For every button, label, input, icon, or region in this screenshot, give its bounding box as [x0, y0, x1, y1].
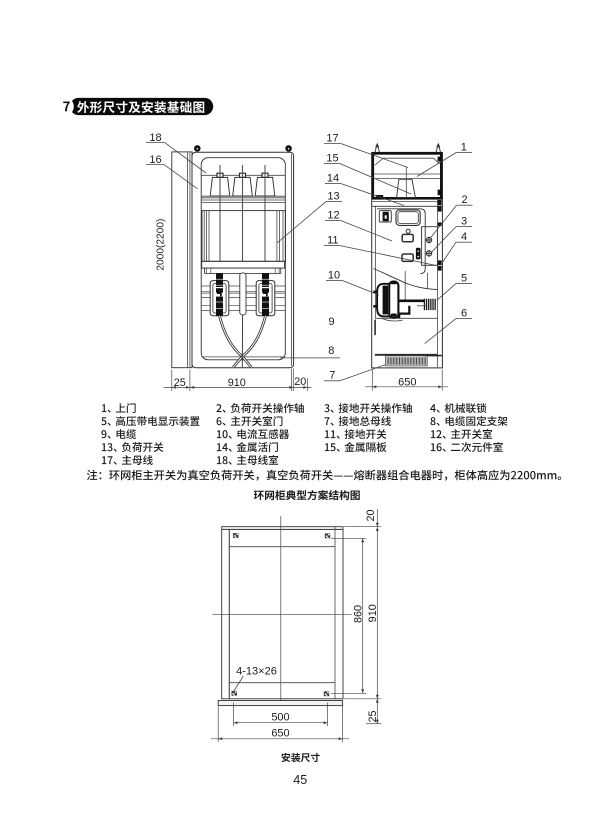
svg-text:14: 14 [327, 173, 339, 185]
svg-text:10: 10 [328, 269, 340, 281]
svg-text:17: 17 [326, 133, 338, 145]
svg-text:1: 1 [461, 141, 467, 153]
svg-text:25: 25 [367, 710, 379, 722]
svg-text:5: 5 [461, 273, 467, 285]
svg-text:2000(2200): 2000(2200) [156, 219, 167, 271]
svg-text:16: 16 [149, 154, 161, 166]
svg-text:7: 7 [329, 370, 335, 382]
svg-text:4: 4 [461, 231, 467, 243]
svg-text:860: 860 [353, 605, 365, 623]
svg-text:650: 650 [271, 728, 289, 740]
svg-text:650: 650 [398, 376, 416, 388]
svg-text:18: 18 [149, 132, 161, 144]
svg-text:500: 500 [271, 711, 289, 723]
svg-text:45: 45 [293, 773, 307, 787]
svg-text:9: 9 [328, 316, 334, 328]
svg-text:20: 20 [365, 509, 377, 521]
svg-text:3: 3 [461, 216, 467, 228]
svg-text:6: 6 [461, 308, 467, 320]
svg-text:910: 910 [228, 377, 246, 389]
svg-text:15: 15 [326, 153, 338, 165]
svg-text:25: 25 [174, 377, 186, 389]
svg-text:11: 11 [327, 235, 338, 247]
svg-text:20: 20 [294, 376, 306, 388]
svg-text:910: 910 [367, 604, 379, 622]
svg-text:4-13×26: 4-13×26 [236, 665, 277, 677]
svg-text:8: 8 [328, 345, 334, 357]
svg-text:13: 13 [327, 191, 339, 203]
svg-text:12: 12 [327, 210, 339, 222]
svg-text:2: 2 [461, 194, 467, 206]
